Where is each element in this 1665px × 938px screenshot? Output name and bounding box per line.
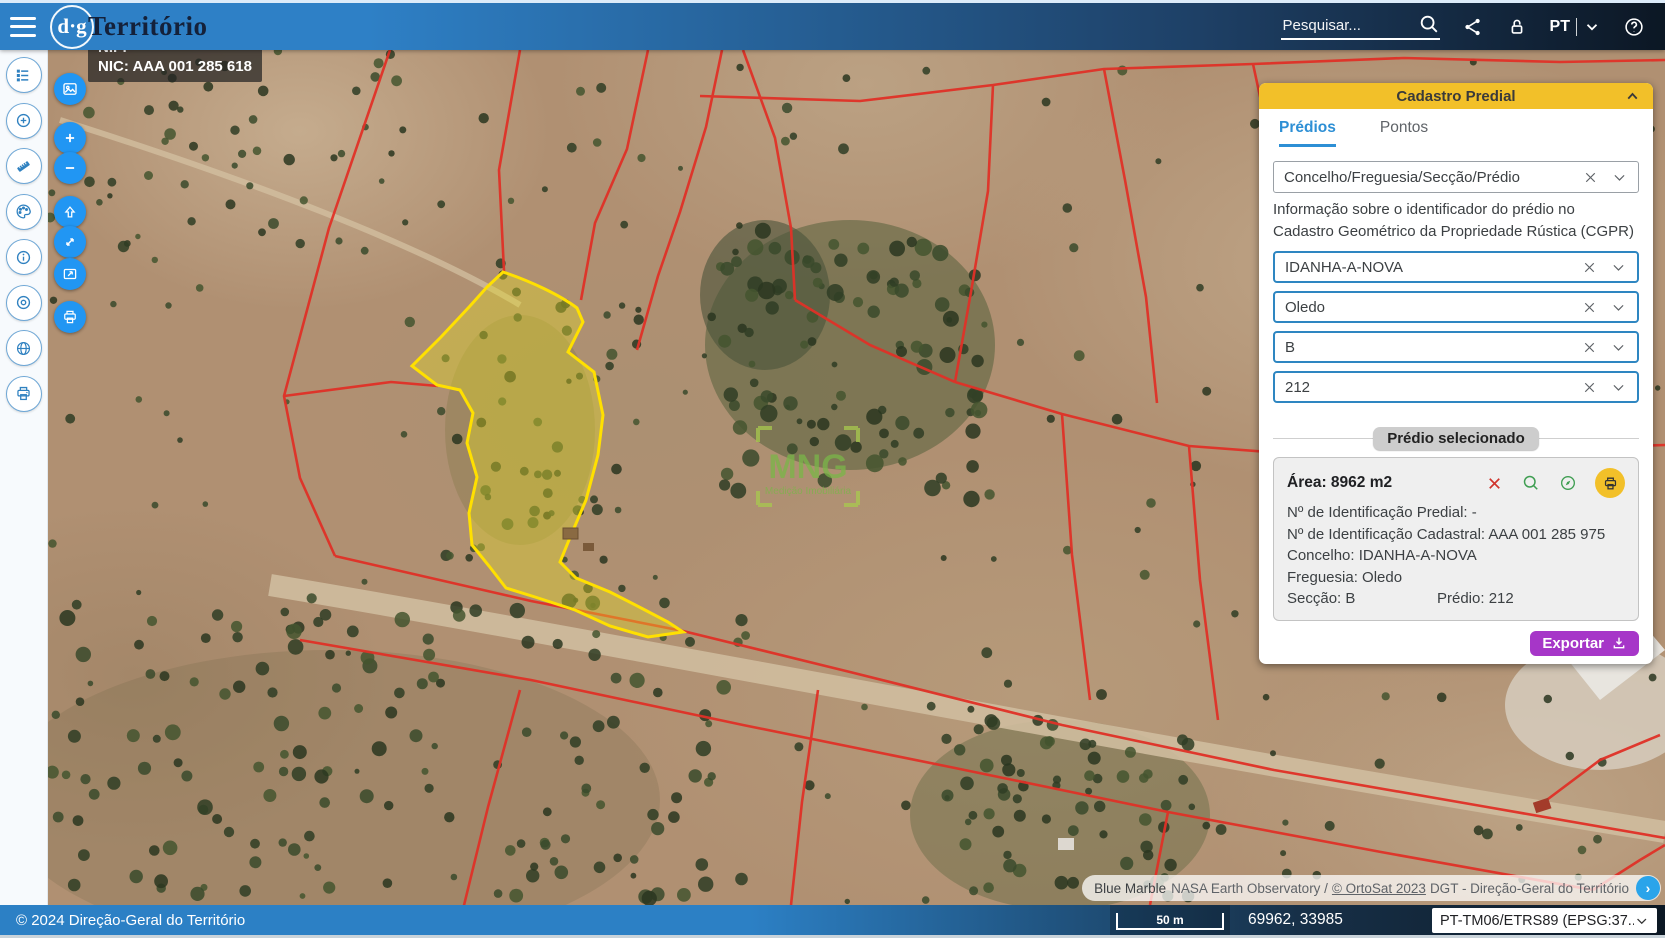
language-selector[interactable]: PT [1550,18,1601,36]
predio-value: 212 [1285,379,1569,396]
freguesia-value: Oledo [1285,299,1569,316]
clear-icon[interactable] [1581,299,1598,316]
clear-icon[interactable] [1581,379,1598,396]
chevron-down-icon[interactable] [1610,299,1627,316]
zoom-to-property-icon[interactable] [1521,473,1541,493]
tooltip-nic: NIC: AAA 001 285 618 [98,57,252,76]
resize-diagonal-button[interactable] [54,226,86,258]
print-map-button[interactable] [54,301,86,333]
panel-header[interactable]: Cadastro Predial [1259,83,1653,109]
language-label: PT [1550,18,1570,36]
chevron-down-icon[interactable] [1583,18,1601,36]
scale-label: 50 m [1156,913,1183,927]
watermark-title: MNG [768,448,847,486]
concelho-value: IDANHA-A-NOVA [1285,259,1569,276]
menu-icon[interactable] [10,17,36,37]
predio-row: Prédio: 212 [1437,588,1514,610]
measure-button[interactable] [6,148,42,184]
attribution-source: NASA Earth Observatory / [1171,881,1328,896]
help-icon[interactable] [1623,16,1645,38]
chevron-down-icon[interactable] [1610,259,1627,276]
shed [583,543,594,551]
left-sidebar [0,50,48,938]
map-attribution: Blue Marble NASA Earth Observatory / © O… [1082,875,1661,901]
selected-property-badge: Prédio selecionado [1373,427,1539,450]
application-window: MNG Medição Imobiliária NIF: - NIC: AAA … [0,0,1665,938]
search-box[interactable] [1281,13,1440,40]
pan-up-button[interactable] [54,196,86,228]
freguesia-row: Freguesia: Oledo [1287,567,1625,589]
info-button[interactable] [6,239,42,275]
copyright-text: © 2024 Direção-Geral do Território [16,912,245,929]
zoom-out-button[interactable] [54,152,86,184]
shed [563,528,578,539]
print-button[interactable] [6,376,42,412]
globe-button[interactable] [6,330,42,366]
id-predial: Nº de Identificação Predial: - [1287,502,1625,524]
attribution-link[interactable]: © OrtoSat 2023 [1332,881,1426,896]
panel-tabs: Prédios Pontos [1259,109,1653,147]
remove-selection-icon[interactable] [1485,474,1504,493]
attribution-basemap: Blue Marble [1094,881,1166,896]
seccao-select[interactable]: B [1273,331,1639,363]
logo[interactable]: d·g Território [50,5,207,49]
bottom-bar: © 2024 Direção-Geral do Território 50 m … [0,905,1665,938]
crs-select[interactable]: PT-TM06/ETRS89 (EPSG:37... [1432,908,1657,933]
export-button[interactable]: Exportar [1530,631,1639,656]
cursor-coordinates: 69962, 33985 [1248,905,1343,935]
export-label: Exportar [1542,635,1604,652]
search-input[interactable] [1281,16,1410,35]
zoom-in-button[interactable] [54,122,86,154]
add-layer-button[interactable] [6,103,42,139]
logo-name: Território [88,11,207,42]
tab-pontos[interactable]: Pontos [1380,119,1428,147]
seccao-row: Secção: B [1287,588,1437,610]
select-disc-button[interactable] [6,285,42,321]
chevron-right-icon[interactable]: › [1636,876,1660,900]
style-palette-button[interactable] [6,194,42,230]
freguesia-select[interactable]: Oledo [1273,291,1639,323]
panel-title: Cadastro Predial [1396,88,1515,105]
predio-select[interactable]: 212 [1273,371,1639,403]
watermark-subtitle: Medição Imobiliária [765,486,852,497]
download-icon [1611,635,1627,651]
chevron-down-icon[interactable] [1610,339,1627,356]
concelho-select[interactable]: IDANHA-A-NOVA [1273,251,1639,283]
divider [1576,18,1577,36]
seccao-value: B [1285,339,1569,356]
clear-icon[interactable] [1582,169,1599,186]
top-bar: d·g Território PT [0,0,1665,50]
tab-predios[interactable]: Prédios [1279,119,1336,147]
chevron-down-icon[interactable] [1610,379,1627,396]
lock-open-icon[interactable] [1506,16,1528,38]
basemap-button[interactable] [54,73,86,105]
collapse-chevron-up-icon[interactable] [1624,88,1641,105]
filter-mode-value: Concelho/Freguesia/Secção/Prédio [1284,169,1570,186]
attribution-owner: DGT - Direção-Geral do Território [1430,881,1629,896]
print-property-button[interactable] [1595,468,1625,498]
legend-list-button[interactable] [6,57,42,93]
concelho-row: Concelho: IDANHA-A-NOVA [1287,545,1625,567]
cgpr-info-text: Informação sobre o identificador do préd… [1273,199,1639,243]
search-icon[interactable] [1418,13,1440,35]
track [60,120,520,305]
clear-icon[interactable] [1581,339,1598,356]
property-card: Área: 8962 m2 Nº de Identificação Predia… [1273,457,1639,621]
chevron-down-icon[interactable] [1611,169,1628,186]
id-cadastral: Nº de Identificação Cadastral: AAA 001 2… [1287,524,1625,546]
property-area: Área: 8962 m2 [1287,474,1485,492]
scale-bar: 50 m [1110,905,1230,935]
full-extent-button[interactable] [54,258,86,290]
chevron-down-icon[interactable] [1634,913,1650,929]
share-icon[interactable] [1462,16,1484,38]
building [1058,838,1074,850]
compass-locate-icon[interactable] [1558,473,1578,493]
selected-property-divider: Prédio selecionado [1273,425,1639,451]
cadastro-predial-panel: Cadastro Predial Prédios Pontos Concelho… [1259,83,1653,664]
crs-value: PT-TM06/ETRS89 (EPSG:37... [1440,913,1634,929]
clear-icon[interactable] [1581,259,1598,276]
filter-mode-select[interactable]: Concelho/Freguesia/Secção/Prédio [1273,161,1639,193]
